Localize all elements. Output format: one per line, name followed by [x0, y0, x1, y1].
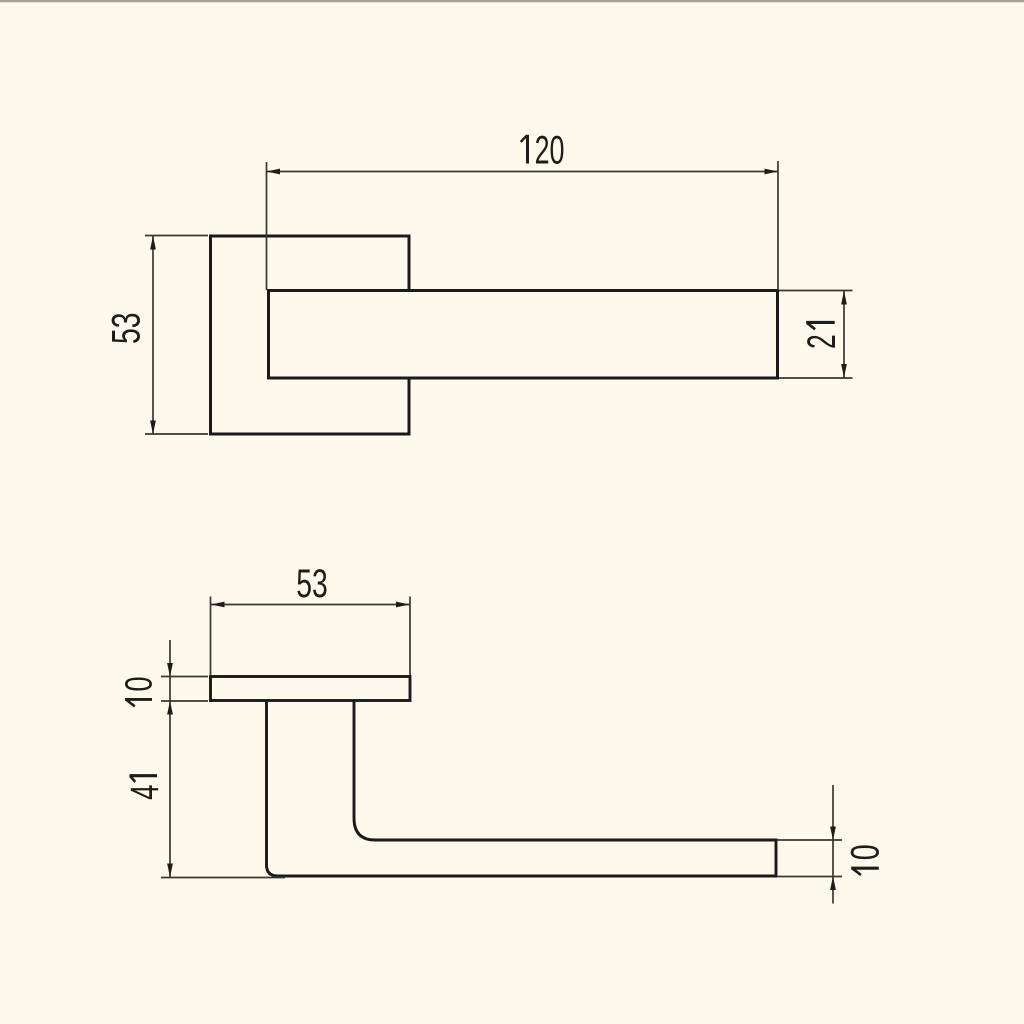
svg-text:53: 53	[105, 313, 149, 345]
svg-text:0: 0	[843, 844, 887, 860]
svg-text:4: 4	[123, 785, 167, 800]
svg-text:2: 2	[800, 334, 844, 349]
svg-text:53: 53	[296, 562, 328, 606]
svg-text:20: 20	[535, 129, 565, 173]
svg-text:0: 0	[119, 676, 161, 691]
